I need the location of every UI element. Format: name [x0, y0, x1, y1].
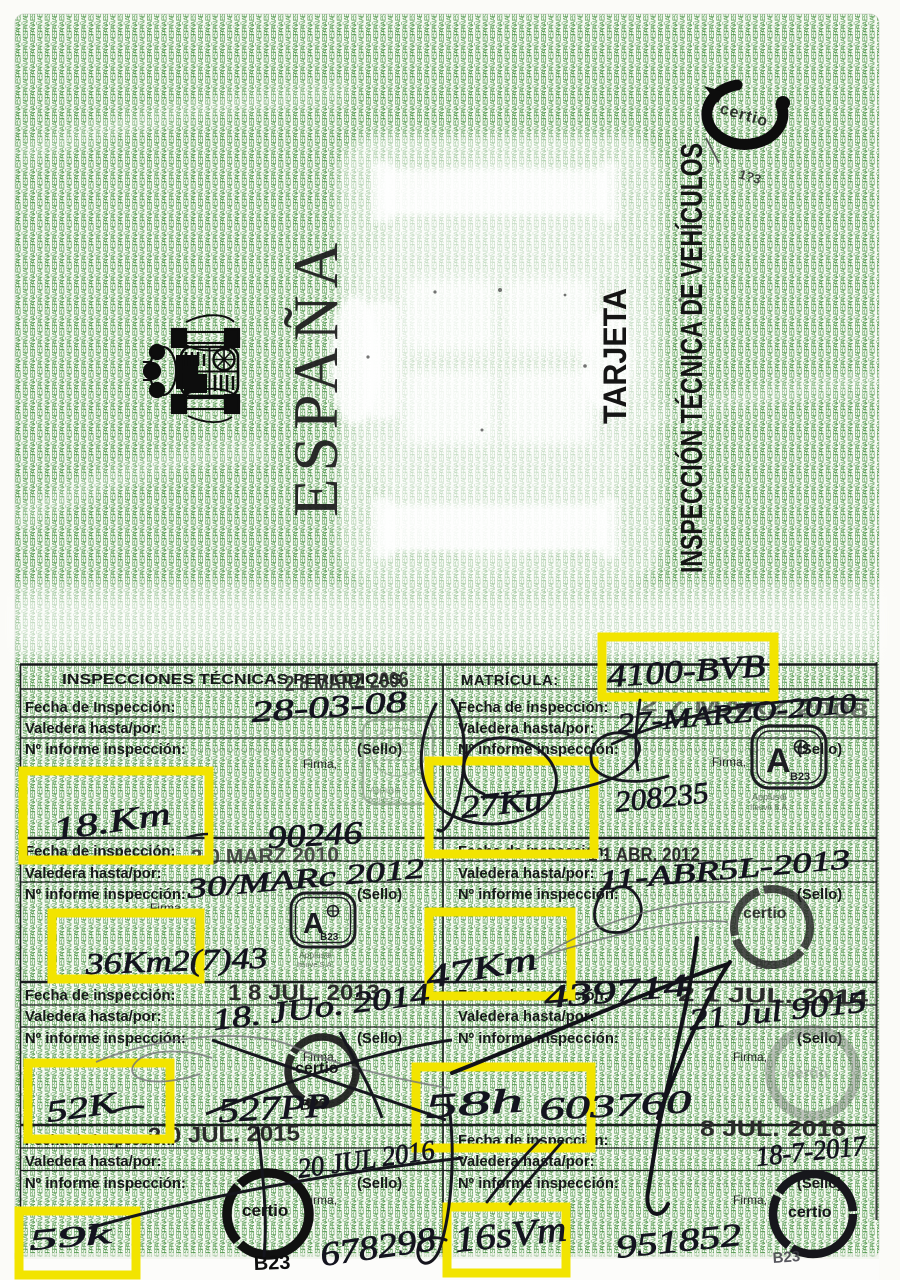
- svg-text:B23: B23: [253, 1252, 290, 1275]
- svg-text:Nº informe inspección:: Nº informe inspección:: [458, 887, 619, 903]
- svg-text:90246: 90246: [266, 814, 363, 855]
- svg-text:Valedera hasta/por:: Valedera hasta/por:: [458, 866, 595, 882]
- svg-text:ESPAÑA: ESPAÑA: [281, 236, 351, 517]
- svg-text:Iteuve S.A.: Iteuve S.A.: [750, 803, 789, 812]
- svg-text:(Sello): (Sello): [357, 1176, 402, 1192]
- svg-text:B23: B23: [772, 1248, 801, 1267]
- svg-text:Iteuve S.A.: Iteuve S.A.: [368, 795, 405, 804]
- svg-text:INSPECCIÓN TÉCNICA DE VEHÍCULO: INSPECCIÓN TÉCNICA DE VEHÍCULOS: [673, 143, 709, 573]
- svg-text:Applus⊕: Applus⊕: [370, 786, 401, 795]
- svg-text:Firma,: Firma,: [733, 1050, 767, 1064]
- svg-text:36Km2(7)43: 36Km2(7)43: [84, 942, 268, 981]
- svg-text:certio: certio: [788, 1204, 832, 1221]
- svg-text:B23: B23: [320, 932, 339, 943]
- svg-text:Valedera hasta/por:: Valedera hasta/por:: [25, 1154, 162, 1170]
- svg-text:Applus⊕: Applus⊕: [752, 792, 787, 802]
- svg-text:B23: B23: [790, 771, 810, 783]
- svg-text:58h: 58h: [424, 1082, 524, 1126]
- svg-text:A: A: [766, 742, 791, 780]
- svg-text:Firma,: Firma,: [303, 757, 337, 771]
- svg-text:Nº informe inspección:: Nº informe inspección:: [458, 1176, 619, 1192]
- svg-text:Firma,: Firma,: [712, 755, 746, 769]
- svg-text:Iteuve S.A.: Iteuve S.A.: [297, 960, 334, 969]
- svg-text:Firma,: Firma,: [733, 1193, 767, 1207]
- svg-text:(Sello): (Sello): [357, 1031, 402, 1047]
- svg-text:(Sello): (Sello): [797, 742, 842, 758]
- svg-text:Valedera hasta/por:: Valedera hasta/por:: [458, 721, 595, 737]
- svg-text:MATRÍCULA:: MATRÍCULA:: [461, 672, 559, 689]
- svg-text:TARJETA: TARJETA: [597, 288, 633, 424]
- svg-text:527PP: 527PP: [217, 1087, 331, 1130]
- svg-text:certio: certio: [787, 1065, 828, 1082]
- svg-text:Valedera hasta/por:: Valedera hasta/por:: [25, 721, 162, 737]
- svg-text:Fecha de inspección:: Fecha de inspección:: [25, 988, 175, 1004]
- svg-text:Nº informe inspección:: Nº informe inspección:: [25, 742, 186, 758]
- svg-text:Fecha de inspección:: Fecha de inspección:: [458, 700, 608, 716]
- svg-text:Applus⊕: Applus⊕: [299, 950, 332, 960]
- svg-text:B23: B23: [797, 1110, 819, 1124]
- svg-text:Valedera hasta/por:: Valedera hasta/por:: [25, 866, 162, 882]
- svg-text:Nº informe inspección:: Nº informe inspección:: [25, 1031, 186, 1047]
- svg-text:Fecha de Inspección:: Fecha de Inspección:: [25, 700, 175, 716]
- svg-text:B23: B23: [755, 958, 777, 972]
- svg-text:certio: certio: [743, 905, 787, 922]
- svg-text:Valedera hasta/por:: Valedera hasta/por:: [25, 1009, 162, 1025]
- svg-text:Nº informe inspección:: Nº informe inspección:: [25, 1176, 186, 1192]
